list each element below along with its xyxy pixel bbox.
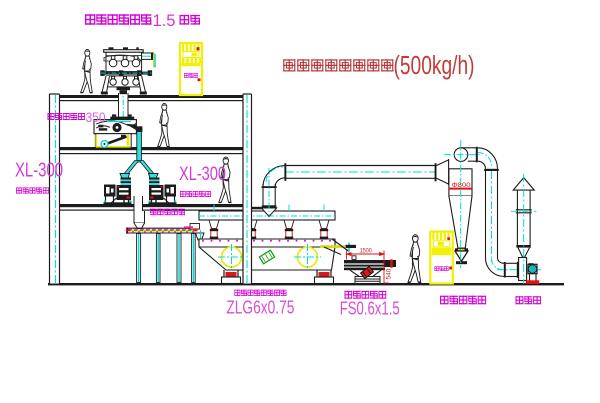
svg-text:1.5: 1.5: [153, 12, 176, 30]
svg-text:(500kg/h): (500kg/h): [394, 52, 475, 80]
svg-text:XL-300: XL-300: [179, 164, 226, 185]
svg-text:ZLG6x0.75: ZLG6x0.75: [226, 297, 294, 318]
svg-text:1500: 1500: [360, 249, 373, 255]
svg-text:XL-300: XL-300: [15, 160, 63, 182]
svg-text:350: 350: [86, 109, 106, 125]
svg-text:540: 540: [386, 268, 393, 279]
svg-text:FS0.6x1.5: FS0.6x1.5: [340, 298, 400, 319]
svg-text:Φ800: Φ800: [452, 183, 472, 189]
